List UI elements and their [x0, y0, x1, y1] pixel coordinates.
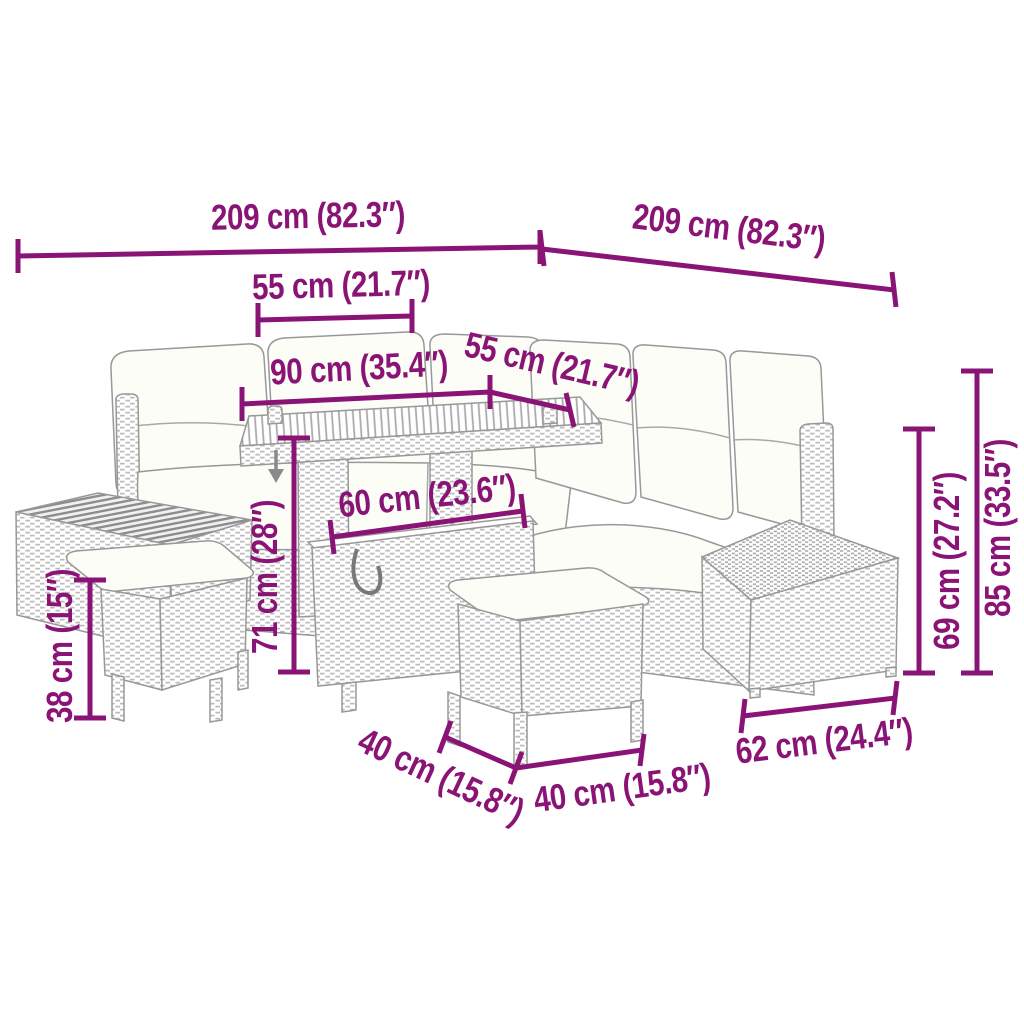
center-stool [448, 568, 649, 768]
stool-leg [112, 674, 124, 721]
storage-box-foot [342, 682, 356, 712]
stool-left-face [101, 589, 162, 690]
furniture-illustration [0, 0, 1024, 1024]
dim-label-table-height: 71 cm (28″) [247, 500, 283, 654]
stool-leg [210, 678, 222, 722]
dim-label-stool-height: 38 cm (15″) [42, 569, 78, 723]
dim-label-seat-back-height: 69 cm (27.2″) [929, 472, 965, 650]
product-dimension-diagram: 209 cm (82.3″) 209 cm (82.3″) 55 cm (21.… [0, 0, 1024, 1024]
dim-label-seat-depth-top: 55 cm (21.7″) [252, 265, 431, 306]
back-cushion [633, 345, 733, 519]
right-corner-table [702, 520, 898, 698]
dim-stool-width-line [516, 734, 644, 768]
side-table-foot [750, 688, 760, 698]
stool-left-face [458, 604, 522, 716]
stool-leg [631, 700, 643, 742]
dim-label-overall-height: 85 cm (33.5″) [980, 439, 1016, 617]
dim-label-corner-section-width: 90 cm (35.4″) [269, 345, 448, 390]
dim-label-overall-width-left: 209 cm (82.3″) [211, 196, 405, 235]
stool-leg [238, 650, 248, 690]
side-table-foot [886, 667, 896, 677]
stool-right-face [520, 604, 643, 716]
lift-knob [268, 406, 282, 424]
